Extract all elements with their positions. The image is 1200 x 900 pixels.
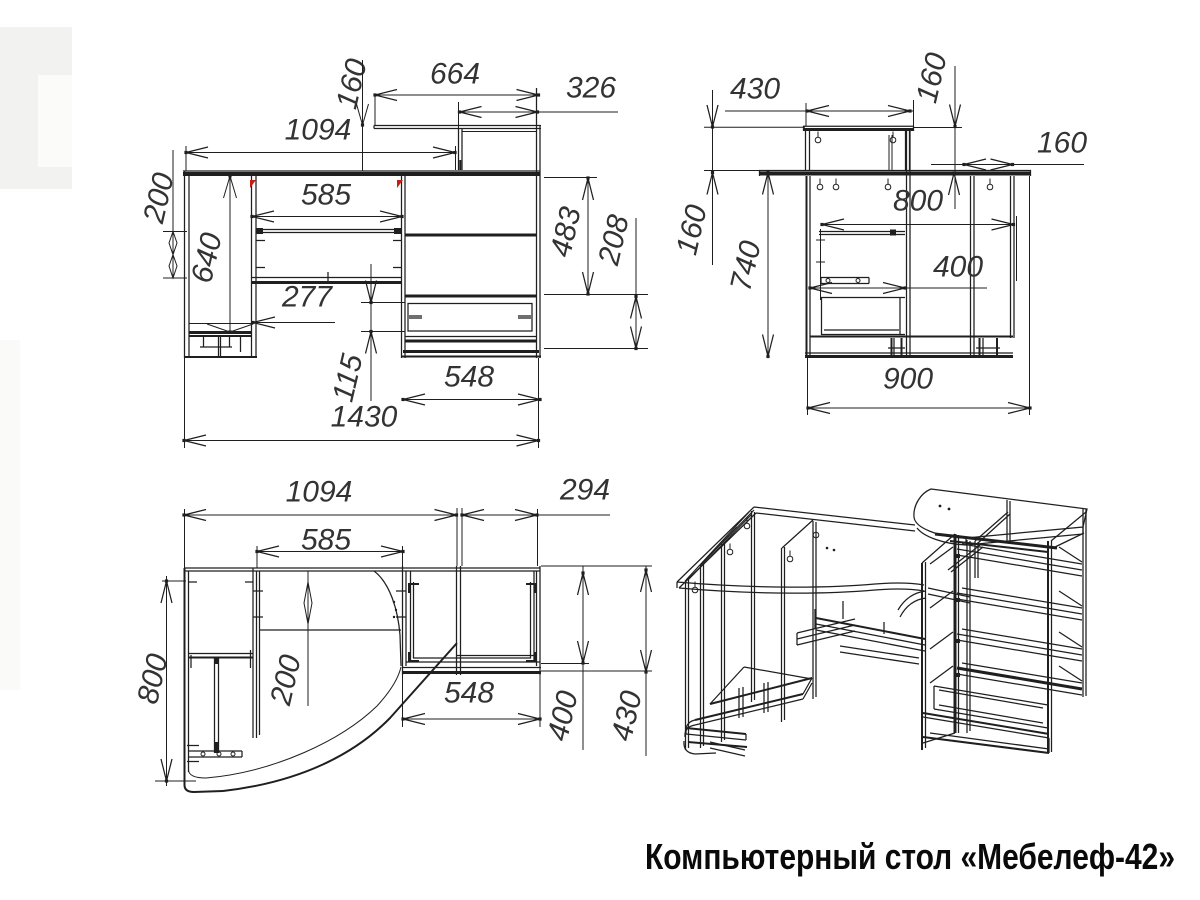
svg-text:900: 900 bbox=[883, 363, 933, 396]
svg-text:277: 277 bbox=[281, 281, 333, 314]
svg-text:326: 326 bbox=[566, 72, 616, 105]
svg-text:1430: 1430 bbox=[331, 401, 398, 434]
svg-text:160: 160 bbox=[1037, 127, 1087, 160]
svg-text:Компьютерный стол «Мебелеф-42»: Компьютерный стол «Мебелеф-42» bbox=[645, 836, 1175, 877]
svg-text:294: 294 bbox=[559, 474, 610, 507]
svg-text:548: 548 bbox=[444, 361, 494, 394]
svg-text:430: 430 bbox=[730, 73, 780, 106]
svg-text:664: 664 bbox=[430, 58, 480, 91]
svg-text:1094: 1094 bbox=[286, 476, 353, 509]
svg-text:1094: 1094 bbox=[285, 114, 352, 147]
svg-text:400: 400 bbox=[933, 251, 983, 284]
svg-text:548: 548 bbox=[444, 677, 494, 710]
svg-text:800: 800 bbox=[893, 185, 943, 218]
svg-text:585: 585 bbox=[301, 179, 351, 212]
